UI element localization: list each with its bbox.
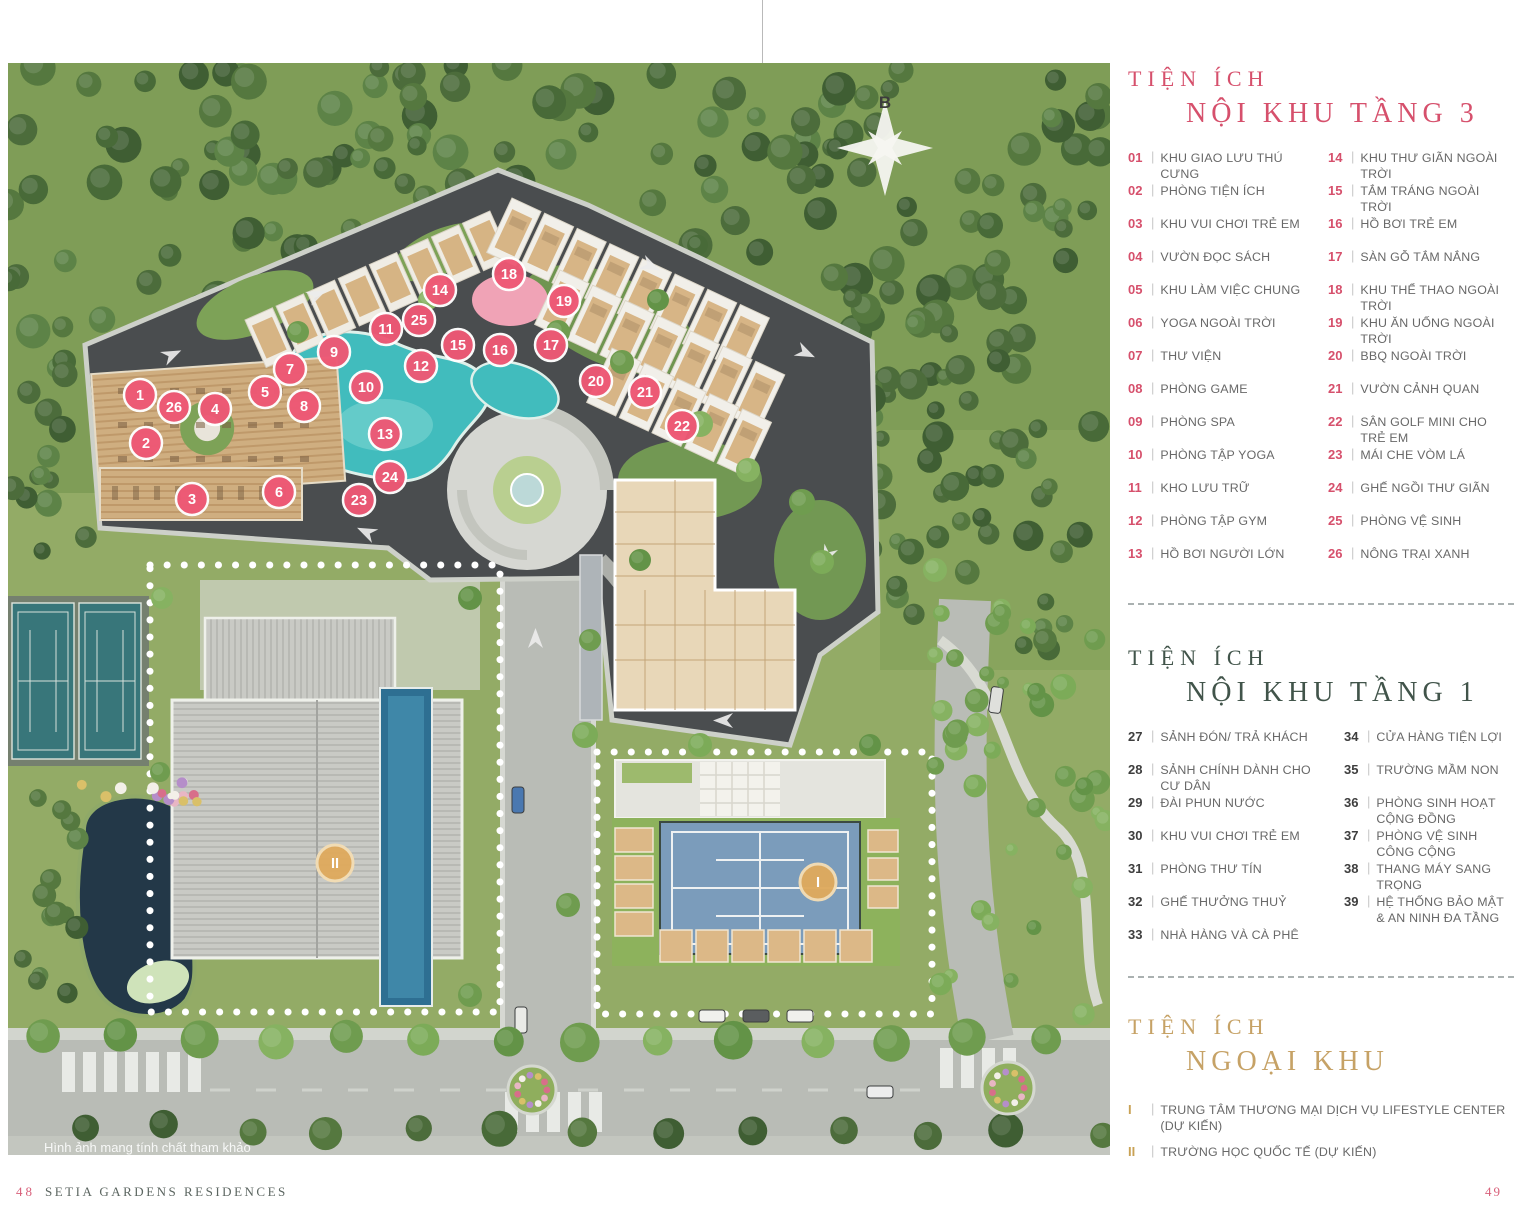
legend-item-divider: |: [1151, 894, 1154, 908]
svg-text:25: 25: [411, 313, 427, 329]
legend-item-divider: |: [1151, 927, 1154, 941]
legend-item-label: SẢNH ĐÓN/ TRẢ KHÁCH: [1160, 729, 1307, 745]
legend-item-label: KHU THƯ GIÃN NGOÀI TRỜI: [1360, 150, 1514, 182]
legend-item-divider: |: [1351, 315, 1354, 329]
legend-item-number: 15: [1328, 183, 1348, 198]
legend-item-divider: |: [1351, 546, 1354, 560]
footer-left: 48SETIA GARDENS RESIDENCES: [16, 1184, 288, 1200]
legend-item-number: 31: [1128, 861, 1148, 876]
map-marker-22: 22: [666, 410, 698, 442]
legend-item-number: 09: [1128, 414, 1148, 429]
legend-column: 27|SẢNH ĐÓN/ TRẢ KHÁCH28|SẢNH CHÍNH DÀNH…: [1128, 729, 1334, 960]
legend-item-38: 38|THANG MÁY SANG TRỌNG: [1344, 861, 1514, 894]
legend-item-number: 13: [1128, 546, 1148, 561]
legend-eyebrow: TIỆN ÍCH: [1128, 1012, 1514, 1042]
legend-section-divider: [1128, 976, 1514, 978]
legend-item-29: 29|ĐÀI PHUN NƯỚC: [1128, 795, 1334, 828]
legend-item-divider: |: [1351, 381, 1354, 395]
legend-columns: 01|KHU GIAO LƯU THÚ CƯNG02|PHÒNG TIỆN ÍC…: [1128, 150, 1514, 579]
car: [699, 1010, 725, 1022]
legend-item-20: 20|BBQ NGOÀI TRỜI: [1328, 348, 1514, 381]
legend-item-label: PHÒNG THƯ TÍN: [1160, 861, 1262, 877]
legend-eyebrow: TIỆN ÍCH: [1128, 643, 1514, 673]
svg-text:6: 6: [275, 485, 283, 501]
legend-item-number: 27: [1128, 729, 1148, 744]
legend-item-label: PHÒNG VỆ SINH: [1360, 513, 1461, 529]
legend-item-14: 14|KHU THƯ GIÃN NGOÀI TRỜI: [1328, 150, 1514, 183]
legend-item-label: VƯỜN ĐỌC SÁCH: [1160, 249, 1270, 265]
legend-item-label: TRUNG TÂM THƯƠNG MẠI DỊCH VỤ LIFESTYLE C…: [1160, 1102, 1514, 1134]
legend-item-number: 20: [1328, 348, 1348, 363]
car: [867, 1086, 893, 1098]
legend-item-divider: |: [1351, 282, 1354, 296]
legend-item-divider: |: [1151, 183, 1154, 197]
legend-item-number: 30: [1128, 828, 1148, 843]
legend-item-divider: |: [1351, 513, 1354, 527]
legend-item-label: KHU VUI CHƠI TRẺ EM: [1160, 216, 1300, 232]
legend-item-divider: |: [1151, 414, 1154, 428]
legend-item-32: 32|GHẾ THƯỞNG THUỶ: [1128, 894, 1334, 927]
legend-item-divider: |: [1351, 414, 1354, 428]
legend-item-label: KHU THỂ THAO NGOÀI TRỜI: [1360, 282, 1514, 314]
legend-item-divider: |: [1151, 315, 1154, 329]
legend-columns: I|TRUNG TÂM THƯƠNG MẠI DỊCH VỤ LIFESTYLE…: [1128, 1102, 1514, 1186]
legend-item-09: 09|PHÒNG SPA: [1128, 414, 1318, 447]
legend-item-label: TẮM TRÁNG NGOÀI TRỜI: [1360, 183, 1514, 215]
legend-item-label: PHÒNG TẬP YOGA: [1160, 447, 1274, 463]
legend-item-15: 15|TẮM TRÁNG NGOÀI TRỜI: [1328, 183, 1514, 216]
svg-text:21: 21: [637, 385, 653, 401]
legend-item-number: 25: [1328, 513, 1348, 528]
legend-item-21: 21|VƯỜN CẢNH QUAN: [1328, 381, 1514, 414]
legend-item-number: 23: [1328, 447, 1348, 462]
legend-item-05: 05|KHU LÀM VIỆC CHUNG: [1128, 282, 1318, 315]
svg-text:5: 5: [261, 385, 269, 401]
legend-item-08: 08|PHÒNG GAME: [1128, 381, 1318, 414]
legend-section-header: TIỆN ÍCHNỘI KHU TẦNG 1: [1128, 643, 1514, 713]
map-marker-11: 11: [370, 313, 402, 345]
legend-item-number: 35: [1344, 762, 1364, 777]
legend-eyebrow: TIỆN ÍCH: [1128, 64, 1514, 94]
svg-text:15: 15: [450, 338, 466, 354]
svg-text:7: 7: [286, 362, 294, 378]
svg-text:24: 24: [382, 470, 398, 486]
legend-item-22: 22|SÂN GOLF MINI CHO TRẺ EM: [1328, 414, 1514, 447]
tennis-courts: [8, 596, 149, 766]
legend-item-label: HỒ BƠI NGƯỜI LỚN: [1160, 546, 1284, 562]
map-marker-9: 9: [318, 336, 350, 368]
legend-item-label: YOGA NGOÀI TRỜI: [1160, 315, 1275, 331]
legend-item-label: KHU GIAO LƯU THÚ CƯNG: [1160, 150, 1318, 182]
legend-item-divider: |: [1151, 861, 1154, 875]
legend-item-number: 29: [1128, 795, 1148, 810]
svg-text:1: 1: [136, 388, 144, 404]
legend-item-label: HỆ THỐNG BẢO MẬT& AN NINH ĐA TẦNG: [1376, 894, 1504, 926]
legend-item-divider: |: [1367, 894, 1370, 908]
legend-item-divider: |: [1367, 828, 1370, 842]
legend-item-number: 28: [1128, 762, 1148, 777]
legend-item-label: NHÀ HÀNG VÀ CÀ PHÊ: [1160, 927, 1299, 943]
legend-item-label: BBQ NGOÀI TRỜI: [1360, 348, 1466, 364]
legend-item-label: CỬA HÀNG TIỆN LỢI: [1376, 729, 1502, 745]
legend-item-number: 14: [1328, 150, 1348, 165]
legend-item-number: II: [1128, 1144, 1148, 1159]
legend-title: NGOẠI KHU: [1186, 1042, 1514, 1082]
legend-item-label: PHÒNG TẬP GYM: [1160, 513, 1267, 529]
legend-item-17: 17|SÀN GỖ TẮM NẮNG: [1328, 249, 1514, 282]
svg-text:II: II: [331, 856, 339, 872]
map-marker-21: 21: [629, 376, 661, 408]
legend-item-label: SẢNH CHÍNH DÀNH CHO CƯ DÂN: [1160, 762, 1334, 794]
map-marker-13: 13: [369, 418, 401, 450]
svg-text:4: 4: [211, 402, 219, 418]
map-marker-II: II: [317, 845, 353, 881]
legend-column: 14|KHU THƯ GIÃN NGOÀI TRỜI15|TẮM TRÁNG N…: [1328, 150, 1514, 579]
legend-item-10: 10|PHÒNG TẬP YOGA: [1128, 447, 1318, 480]
svg-text:11: 11: [378, 322, 393, 338]
map-marker-26: 26: [158, 391, 190, 423]
legend-item-II: II|TRƯỜNG HỌC QUỐC TẾ (DỰ KIẾN): [1128, 1144, 1514, 1186]
map-marker-12: 12: [405, 350, 437, 382]
legend-item-label: GHẾ THƯỞNG THUỶ: [1160, 894, 1286, 910]
map-marker-5: 5: [249, 376, 281, 408]
legend-item-divider: |: [1367, 729, 1370, 743]
svg-text:I: I: [816, 875, 820, 891]
legend-item-divider: |: [1351, 249, 1354, 263]
legend-item-number: 34: [1344, 729, 1364, 744]
site-plan-map: B Hình ảnh mang tính chất tham khảo 1234…: [8, 63, 1110, 1155]
legend-panel: TIỆN ÍCHNỘI KHU TẦNG 301|KHU GIAO LƯU TH…: [1128, 64, 1514, 1186]
legend-item-label: PHÒNG SINH HOẠT CỘNG ĐỒNG: [1376, 795, 1514, 827]
legend-item-divider: |: [1151, 447, 1154, 461]
footer-project-title: SETIA GARDENS RESIDENCES: [45, 1184, 288, 1199]
legend-item-01: 01|KHU GIAO LƯU THÚ CƯNG: [1128, 150, 1318, 183]
legend-section-header: TIỆN ÍCHNỘI KHU TẦNG 3: [1128, 64, 1514, 134]
legend-item-label: PHÒNG GAME: [1160, 381, 1247, 397]
page-crop-line: [762, 0, 763, 63]
legend-section-1: TIỆN ÍCHNỘI KHU TẦNG 127|SẢNH ĐÓN/ TRẢ K…: [1128, 643, 1514, 960]
legend-column: 01|KHU GIAO LƯU THÚ CƯNG02|PHÒNG TIỆN ÍC…: [1128, 150, 1318, 579]
legend-item-36: 36|PHÒNG SINH HOẠT CỘNG ĐỒNG: [1344, 795, 1514, 828]
legend-item-label: SÂN GOLF MINI CHO TRẺ EM: [1360, 414, 1514, 446]
legend-item-number: 03: [1128, 216, 1148, 231]
brochure-page: B Hình ảnh mang tính chất tham khảo 1234…: [0, 0, 1536, 1231]
legend-item-24: 24|GHẾ NGỒI THƯ GIÃN: [1328, 480, 1514, 513]
map-marker-1: 1: [124, 379, 156, 411]
map-marker-4: 4: [199, 393, 231, 425]
legend-item-divider: |: [1151, 216, 1154, 230]
legend-item-number: 21: [1328, 381, 1348, 396]
map-marker-14: 14: [424, 274, 456, 306]
legend-item-divider: |: [1151, 795, 1154, 809]
legend-item-39: 39|HỆ THỐNG BẢO MẬT& AN NINH ĐA TẦNG: [1344, 894, 1514, 927]
legend-item-divider: |: [1151, 150, 1154, 164]
legend-item-divider: |: [1367, 762, 1370, 776]
svg-text:20: 20: [588, 374, 604, 390]
page-number-left: 48: [16, 1184, 35, 1199]
svg-text:3: 3: [188, 492, 196, 508]
legend-item-26: 26|NÔNG TRẠI XANH: [1328, 546, 1514, 579]
svg-text:14: 14: [432, 283, 448, 299]
map-marker-3: 3: [176, 483, 208, 515]
legend-item-number: 36: [1344, 795, 1364, 810]
legend-item-label: GHẾ NGỒI THƯ GIÃN: [1360, 480, 1489, 496]
legend-section-divider: [1128, 603, 1514, 605]
legend-item-divider: |: [1151, 729, 1154, 743]
legend-item-divider: |: [1151, 381, 1154, 395]
legend-item-divider: |: [1351, 150, 1354, 164]
legend-item-11: 11|KHO LƯU TRỮ: [1128, 480, 1318, 513]
legend-item-label: NÔNG TRẠI XANH: [1360, 546, 1469, 562]
map-marker-25: 25: [403, 304, 435, 336]
legend-item-number: 26: [1328, 546, 1348, 561]
legend-item-divider: |: [1367, 861, 1370, 875]
legend-item-number: 33: [1128, 927, 1148, 942]
legend-column: I|TRUNG TÂM THƯƠNG MẠI DỊCH VỤ LIFESTYLE…: [1128, 1102, 1514, 1186]
legend-item-label: TRƯỜNG MẦM NON: [1376, 762, 1498, 778]
legend-item-label: PHÒNG SPA: [1160, 414, 1235, 430]
legend-item-divider: |: [1351, 183, 1354, 197]
legend-item-23: 23|MÁI CHE VÒM LÁ: [1328, 447, 1514, 480]
legend-item-number: 04: [1128, 249, 1148, 264]
legend-item-divider: |: [1151, 828, 1154, 842]
svg-text:26: 26: [166, 400, 182, 416]
svg-text:22: 22: [674, 419, 690, 435]
legend-item-divider: |: [1151, 1102, 1154, 1116]
svg-text:23: 23: [351, 493, 367, 509]
legend-item-16: 16|HỒ BƠI TRẺ EM: [1328, 216, 1514, 249]
legend-item-label: THANG MÁY SANG TRỌNG: [1376, 861, 1514, 893]
legend-item-label: KHU ĂN UỐNG NGOÀI TRỜI: [1360, 315, 1514, 347]
legend-item-number: 18: [1328, 282, 1348, 297]
legend-title: NỘI KHU TẦNG 1: [1186, 673, 1514, 713]
map-marker-16: 16: [484, 334, 516, 366]
legend-item-number: 32: [1128, 894, 1148, 909]
legend-item-divider: |: [1151, 348, 1154, 362]
svg-text:9: 9: [330, 345, 338, 361]
svg-text:8: 8: [300, 399, 308, 415]
legend-item-18: 18|KHU THỂ THAO NGOÀI TRỜI: [1328, 282, 1514, 315]
legend-item-02: 02|PHÒNG TIỆN ÍCH: [1128, 183, 1318, 216]
legend-item-27: 27|SẢNH ĐÓN/ TRẢ KHÁCH: [1128, 729, 1334, 762]
legend-item-number: 01: [1128, 150, 1148, 165]
map-marker-20: 20: [580, 365, 612, 397]
legend-columns: 27|SẢNH ĐÓN/ TRẢ KHÁCH28|SẢNH CHÍNH DÀNH…: [1128, 729, 1514, 960]
legend-item-number: 02: [1128, 183, 1148, 198]
legend-column: 34|CỬA HÀNG TIỆN LỢI35|TRƯỜNG MẦM NON36|…: [1344, 729, 1514, 960]
legend-item-label: HỒ BƠI TRẺ EM: [1360, 216, 1457, 232]
legend-item-I: I|TRUNG TÂM THƯƠNG MẠI DỊCH VỤ LIFESTYLE…: [1128, 1102, 1514, 1144]
legend-item-number: 22: [1328, 414, 1348, 429]
legend-item-03: 03|KHU VUI CHƠI TRẺ EM: [1128, 216, 1318, 249]
legend-item-37: 37|PHÒNG VỆ SINH CÔNG CỘNG: [1344, 828, 1514, 861]
lifestyle-center: [612, 760, 900, 966]
svg-text:10: 10: [358, 380, 374, 396]
map-marker-I: I: [800, 864, 836, 900]
legend-item-divider: |: [1351, 480, 1354, 494]
legend-item-06: 06|YOGA NGOÀI TRỜI: [1128, 315, 1318, 348]
legend-item-04: 04|VƯỜN ĐỌC SÁCH: [1128, 249, 1318, 282]
map-marker-8: 8: [288, 390, 320, 422]
map-marker-24: 24: [374, 461, 406, 493]
legend-item-divider: |: [1151, 249, 1154, 263]
legend-item-number: 06: [1128, 315, 1148, 330]
car: [787, 1010, 813, 1022]
legend-item-label: KHU VUI CHƠI TRẺ EM: [1160, 828, 1300, 844]
legend-item-divider: |: [1151, 480, 1154, 494]
legend-item-number: 05: [1128, 282, 1148, 297]
page-number-right: 49: [1485, 1184, 1502, 1200]
svg-text:18: 18: [501, 267, 517, 283]
legend-item-label: THƯ VIỆN: [1160, 348, 1221, 364]
legend-item-number: 10: [1128, 447, 1148, 462]
map-marker-15: 15: [442, 329, 474, 361]
legend-item-label: PHÒNG VỆ SINH CÔNG CỘNG: [1376, 828, 1514, 860]
legend-item-divider: |: [1151, 762, 1154, 776]
legend-item-divider: |: [1351, 216, 1354, 230]
legend-item-number: 17: [1328, 249, 1348, 264]
legend-item-number: I: [1128, 1102, 1148, 1117]
legend-item-divider: |: [1151, 546, 1154, 560]
map-marker-17: 17: [535, 329, 567, 361]
legend-item-label: PHÒNG TIỆN ÍCH: [1160, 183, 1264, 199]
svg-text:17: 17: [543, 338, 559, 354]
map-marker-18: 18: [493, 258, 525, 290]
svg-text:2: 2: [142, 436, 150, 452]
legend-item-31: 31|PHÒNG THƯ TÍN: [1128, 861, 1334, 894]
legend-item-divider: |: [1367, 795, 1370, 809]
legend-item-number: 38: [1344, 861, 1364, 876]
legend-item-label: KHO LƯU TRỮ: [1160, 480, 1249, 496]
svg-text:12: 12: [413, 359, 429, 375]
legend-item-number: 24: [1328, 480, 1348, 495]
legend-item-label: SÀN GỖ TẮM NẮNG: [1360, 249, 1480, 265]
site-plan: B Hình ảnh mang tính chất tham khảo 1234…: [8, 63, 1110, 1155]
legend-item-number: 39: [1344, 894, 1364, 909]
legend-item-number: 19: [1328, 315, 1348, 330]
legend-item-28: 28|SẢNH CHÍNH DÀNH CHO CƯ DÂN: [1128, 762, 1334, 795]
legend-item-30: 30|KHU VUI CHƠI TRẺ EM: [1128, 828, 1334, 861]
legend-item-divider: |: [1151, 513, 1154, 527]
legend-item-12: 12|PHÒNG TẬP GYM: [1128, 513, 1318, 546]
map-marker-10: 10: [350, 371, 382, 403]
legend-item-number: 12: [1128, 513, 1148, 528]
legend-item-34: 34|CỬA HÀNG TIỆN LỢI: [1344, 729, 1514, 762]
legend-item-19: 19|KHU ĂN UỐNG NGOÀI TRỜI: [1328, 315, 1514, 348]
map-marker-2: 2: [130, 427, 162, 459]
legend-title: NỘI KHU TẦNG 3: [1186, 94, 1514, 134]
legend-section-0: TIỆN ÍCHNỘI KHU TẦNG 301|KHU GIAO LƯU TH…: [1128, 64, 1514, 579]
svg-text:19: 19: [556, 294, 572, 310]
legend-item-number: 37: [1344, 828, 1364, 843]
compass-north-label: B: [879, 93, 891, 112]
legend-item-divider: |: [1151, 282, 1154, 296]
legend-item-07: 07|THƯ VIỆN: [1128, 348, 1318, 381]
map-marker-19: 19: [548, 285, 580, 317]
legend-item-label: ĐÀI PHUN NƯỚC: [1160, 795, 1264, 811]
map-watermark: Hình ảnh mang tính chất tham khảo: [44, 1140, 251, 1155]
legend-item-35: 35|TRƯỜNG MẦM NON: [1344, 762, 1514, 795]
legend-item-number: 16: [1328, 216, 1348, 231]
legend-item-divider: |: [1351, 447, 1354, 461]
legend-item-label: KHU LÀM VIỆC CHUNG: [1160, 282, 1300, 298]
legend-item-divider: |: [1351, 348, 1354, 362]
legend-item-divider: |: [1151, 1144, 1154, 1158]
legend-item-number: 11: [1128, 480, 1148, 495]
legend-item-33: 33|NHÀ HÀNG VÀ CÀ PHÊ: [1128, 927, 1334, 960]
international-school: [172, 580, 480, 1006]
legend-section-2: TIỆN ÍCHNGOẠI KHUI|TRUNG TÂM THƯƠNG MẠI …: [1128, 1012, 1514, 1186]
legend-item-13: 13|HỒ BƠI NGƯỜI LỚN: [1128, 546, 1318, 579]
legend-section-header: TIỆN ÍCHNGOẠI KHU: [1128, 1012, 1514, 1082]
car: [743, 1010, 769, 1022]
legend-item-number: 07: [1128, 348, 1148, 363]
legend-item-label: TRƯỜNG HỌC QUỐC TẾ (DỰ KIẾN): [1160, 1144, 1376, 1160]
legend-item-number: 08: [1128, 381, 1148, 396]
car: [512, 787, 524, 813]
svg-text:16: 16: [492, 343, 508, 359]
map-marker-7: 7: [274, 353, 306, 385]
map-marker-23: 23: [343, 484, 375, 516]
legend-item-label: MÁI CHE VÒM LÁ: [1360, 447, 1465, 463]
map-marker-6: 6: [263, 476, 295, 508]
legend-item-25: 25|PHÒNG VỆ SINH: [1328, 513, 1514, 546]
legend-item-label: VƯỜN CẢNH QUAN: [1360, 381, 1479, 397]
svg-text:13: 13: [377, 427, 393, 443]
